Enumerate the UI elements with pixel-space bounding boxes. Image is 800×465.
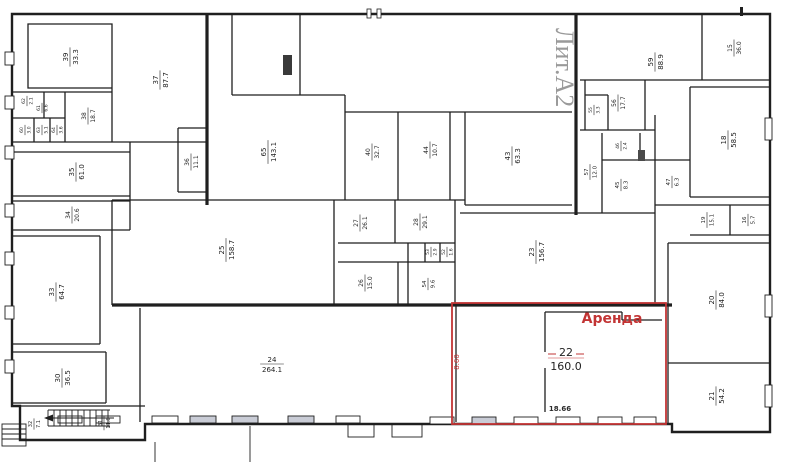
room-area: 20.6 — [74, 208, 81, 222]
entry-steps — [2, 424, 422, 462]
room-label-47: 476.3 — [666, 176, 681, 188]
room-label-53: 532.9 — [425, 247, 439, 257]
room-label-39: 3933.3 — [62, 47, 80, 66]
room-number: 39 — [62, 53, 70, 62]
room-label-61: 616.6 — [36, 103, 50, 113]
room-number: 52 — [441, 249, 447, 255]
room-label-43: 4363.3 — [504, 146, 522, 165]
room-label-52: 521.6 — [441, 247, 455, 257]
room-label-37: 3787.7 — [152, 70, 170, 89]
room-label-64: 643.6 — [51, 125, 65, 135]
room-area: 32.7 — [374, 145, 381, 159]
room-number: 44 — [423, 146, 430, 154]
room-area: 143.1 — [270, 142, 278, 162]
room-area: 3.3 — [596, 106, 602, 113]
room-label-34: 3420.6 — [65, 207, 81, 224]
room-number: 27 — [353, 219, 360, 227]
room-label-20: 2084.0 — [708, 290, 726, 309]
room-number: 25 — [218, 246, 226, 255]
room-area: 11.1 — [193, 155, 200, 169]
room-area: 5.1 — [44, 126, 50, 133]
room-label-19: 1915.1 — [701, 212, 716, 228]
room-label-21: 2154.2 — [708, 386, 726, 405]
room-label-28: 2829.1 — [413, 214, 429, 231]
room-area: 158.7 — [228, 240, 236, 260]
rent-height-dim: 8.60 — [453, 354, 461, 370]
room-number: 30 — [54, 374, 62, 383]
room-label-44: 4410.7 — [423, 142, 439, 159]
room-label-32: 327.1 — [28, 418, 42, 429]
room-area: 29.1 — [422, 215, 429, 229]
room-number: 65 — [260, 148, 268, 157]
room-number: 26 — [358, 279, 365, 287]
room-area: 2.1 — [29, 97, 35, 104]
window-symbols — [58, 118, 772, 424]
room-number: 46 — [615, 143, 621, 149]
room-number: 57 — [584, 168, 590, 175]
room-area: 3.0 — [27, 126, 33, 133]
room-area: 26.1 — [362, 216, 369, 230]
room-number: 23 — [528, 248, 536, 257]
room-number: 28 — [413, 218, 420, 226]
room-number: 18 — [720, 136, 728, 145]
room-area: 11.8 — [106, 417, 112, 428]
room-area: 10.7 — [432, 143, 439, 157]
room-label-63: 635.1 — [36, 125, 50, 135]
rent-label: Аренда — [582, 311, 643, 327]
room-number: 24 — [268, 356, 277, 364]
room-number: 31 — [98, 420, 104, 426]
room-label-46: 462.4 — [615, 141, 629, 151]
room-label-55: 553.3 — [588, 105, 602, 115]
floor-plan-drawing: Лит.А2 Аренда 18.66 8.60 3933.33787.7381… — [0, 0, 800, 465]
room-area: 58.5 — [730, 132, 738, 148]
room-label-56: 5617.7 — [611, 95, 627, 112]
room-area: 17.7 — [620, 96, 627, 110]
room-area: 160.0 — [550, 360, 582, 373]
room-number: 20 — [708, 296, 716, 305]
room-label-30: 3036.5 — [54, 368, 72, 387]
room-number: 37 — [152, 76, 160, 85]
room-label-24: 24264.1 — [260, 356, 284, 374]
room-number: 15 — [727, 44, 734, 52]
room-number: 19 — [701, 216, 707, 223]
interior-walls — [12, 14, 770, 424]
room-area: 8.3 — [624, 180, 630, 189]
room-number: 22 — [559, 346, 573, 359]
room-label-57: 5712.0 — [584, 164, 599, 180]
room-number: 56 — [611, 99, 618, 107]
room-area: 156.7 — [538, 242, 546, 262]
room-area: 61.0 — [78, 164, 86, 180]
room-label-36: 3611.1 — [184, 154, 200, 171]
rent-width-dim: 18.66 — [549, 405, 571, 413]
room-area: 36.0 — [736, 41, 743, 55]
room-label-60: 603.0 — [19, 125, 33, 135]
room-label-59: 5988.9 — [647, 52, 665, 71]
room-number: 55 — [588, 107, 594, 113]
room-area: 12.0 — [593, 165, 599, 178]
room-label-54: 549.6 — [422, 278, 437, 290]
room-number: 54 — [422, 280, 428, 287]
exterior-walls-outline — [12, 14, 770, 440]
room-number: 62 — [21, 98, 27, 104]
room-area: 6.3 — [675, 177, 681, 186]
room-label-35: 3561.0 — [68, 162, 86, 181]
lit-a2-label: Лит.А2 — [550, 28, 579, 107]
room-area: 36.5 — [64, 370, 72, 386]
room-area: 15.1 — [710, 214, 716, 226]
room-label-65: 65143.1 — [260, 140, 278, 164]
room-area: 88.9 — [657, 54, 665, 70]
room-area: 6.6 — [44, 104, 50, 111]
room-label-38: 3818.7 — [81, 108, 97, 125]
room-number: 53 — [425, 249, 431, 255]
room-area: 84.0 — [718, 292, 726, 308]
room-area: 9.6 — [431, 279, 437, 288]
room-area: 7.1 — [36, 420, 42, 428]
room-number: 59 — [647, 58, 655, 67]
room-area: 18.7 — [90, 109, 97, 123]
room-number: 16 — [742, 216, 748, 223]
room-number: 38 — [81, 112, 88, 120]
floor-plan-page: Лит.А2 Аренда 18.66 8.60 3933.33787.7381… — [0, 0, 800, 465]
room-area: 1.6 — [449, 248, 455, 255]
room-area: 33.3 — [72, 49, 80, 65]
room-number: 21 — [708, 392, 716, 401]
room-area: 54.2 — [718, 388, 726, 404]
room-number: 63 — [36, 127, 42, 133]
room-number: 35 — [68, 168, 76, 177]
room-number: 45 — [615, 181, 621, 188]
room-area: 2.4 — [623, 142, 629, 149]
room-area: 15.0 — [367, 276, 374, 290]
room-label-33: 3364.7 — [48, 282, 66, 301]
room-number: 64 — [51, 127, 57, 133]
room-label-26: 2615.0 — [358, 275, 374, 292]
room-number: 61 — [36, 105, 42, 111]
room-number: 33 — [48, 288, 56, 297]
room-label-16: 165.7 — [742, 214, 757, 226]
shaft-marks — [283, 7, 743, 161]
room-number: 34 — [65, 211, 72, 219]
room-label-22: 22160.0 — [548, 346, 584, 373]
room-area: 87.7 — [162, 72, 170, 88]
room-number: 60 — [19, 127, 25, 133]
room-area: 3.6 — [59, 126, 65, 133]
room-label-40: 4032.7 — [365, 144, 381, 161]
room-label-23: 23156.7 — [528, 240, 546, 264]
room-label-62: 622.1 — [21, 96, 35, 106]
room-label-18: 1858.5 — [720, 130, 738, 149]
room-number: 43 — [504, 152, 512, 161]
room-area: 63.3 — [514, 148, 522, 164]
room-number: 36 — [184, 158, 191, 166]
room-label-27: 2726.1 — [353, 215, 369, 232]
room-area: 2.9 — [433, 248, 439, 255]
room-label-15: 1536.0 — [727, 40, 743, 57]
room-area: 5.7 — [751, 215, 757, 224]
room-number: 47 — [666, 178, 672, 185]
room-area: 264.1 — [262, 366, 282, 374]
room-number: 32 — [28, 421, 34, 427]
room-number: 40 — [365, 148, 372, 156]
room-label-45: 458.3 — [615, 179, 630, 191]
room-label-25: 25158.7 — [218, 238, 236, 262]
room-area: 64.7 — [58, 284, 66, 300]
